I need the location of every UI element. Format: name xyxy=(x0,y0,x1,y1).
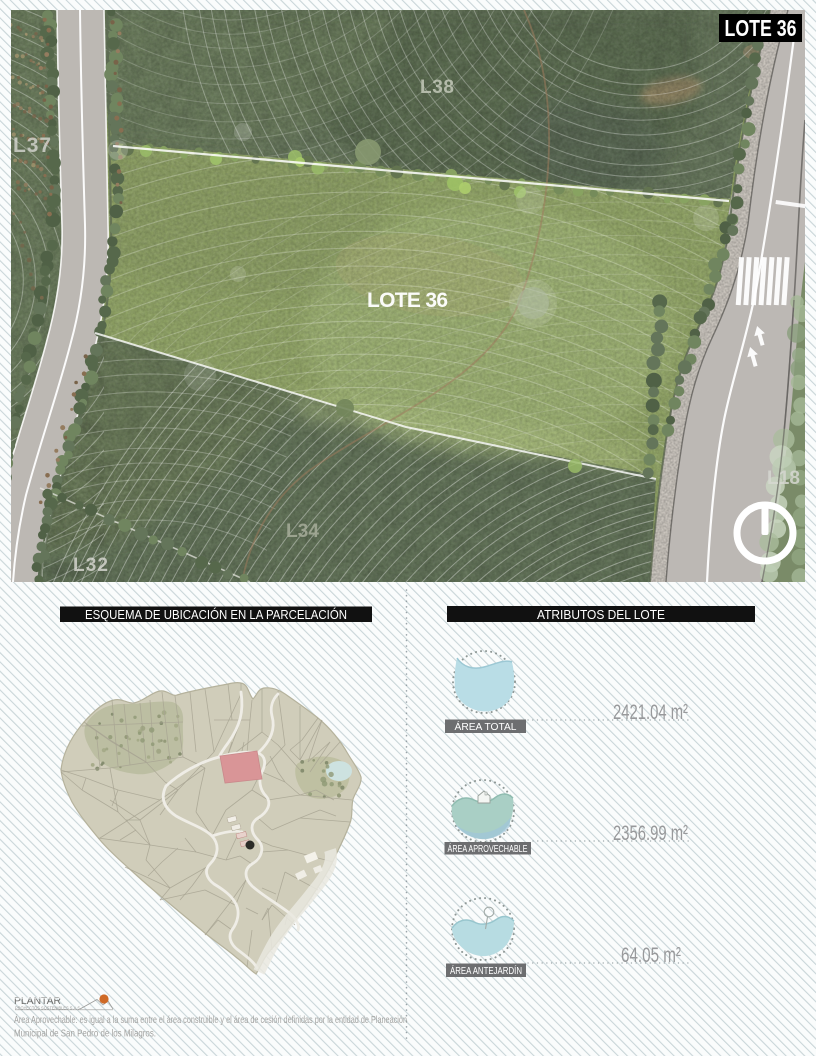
svg-text:ATRIBUTOS DEL LOTE: ATRIBUTOS DEL LOTE xyxy=(537,607,665,622)
svg-text:64.05 m²: 64.05 m² xyxy=(621,944,681,967)
svg-text:PROYECTOS SOSTENIBLES S.A.S: PROYECTOS SOSTENIBLES S.A.S xyxy=(15,1006,80,1012)
svg-text:ESQUEMA DE UBICACIÓN EN LA PAR: ESQUEMA DE UBICACIÓN EN LA PARCELACIÓN xyxy=(85,607,347,622)
svg-text:2356.99 m²: 2356.99 m² xyxy=(613,822,688,845)
svg-text:ÁREA TOTAL: ÁREA TOTAL xyxy=(455,720,517,733)
svg-text:2421.04 m²: 2421.04 m² xyxy=(613,701,688,724)
svg-text:PLANTAR: PLANTAR xyxy=(14,995,61,1007)
svg-text:ÁREA APROVECHABLE: ÁREA APROVECHABLE xyxy=(448,842,528,855)
svg-text:ÁREA ANTEJARDÍN: ÁREA ANTEJARDÍN xyxy=(450,964,522,977)
svg-text:Municipal de San Pedro de los: Municipal de San Pedro de los Milagros. xyxy=(14,1028,156,1040)
svg-text:LOTE 36: LOTE 36 xyxy=(725,15,797,41)
svg-text:Área Aprovechable: es igual a: Área Aprovechable: es igual a la suma en… xyxy=(14,1013,407,1026)
